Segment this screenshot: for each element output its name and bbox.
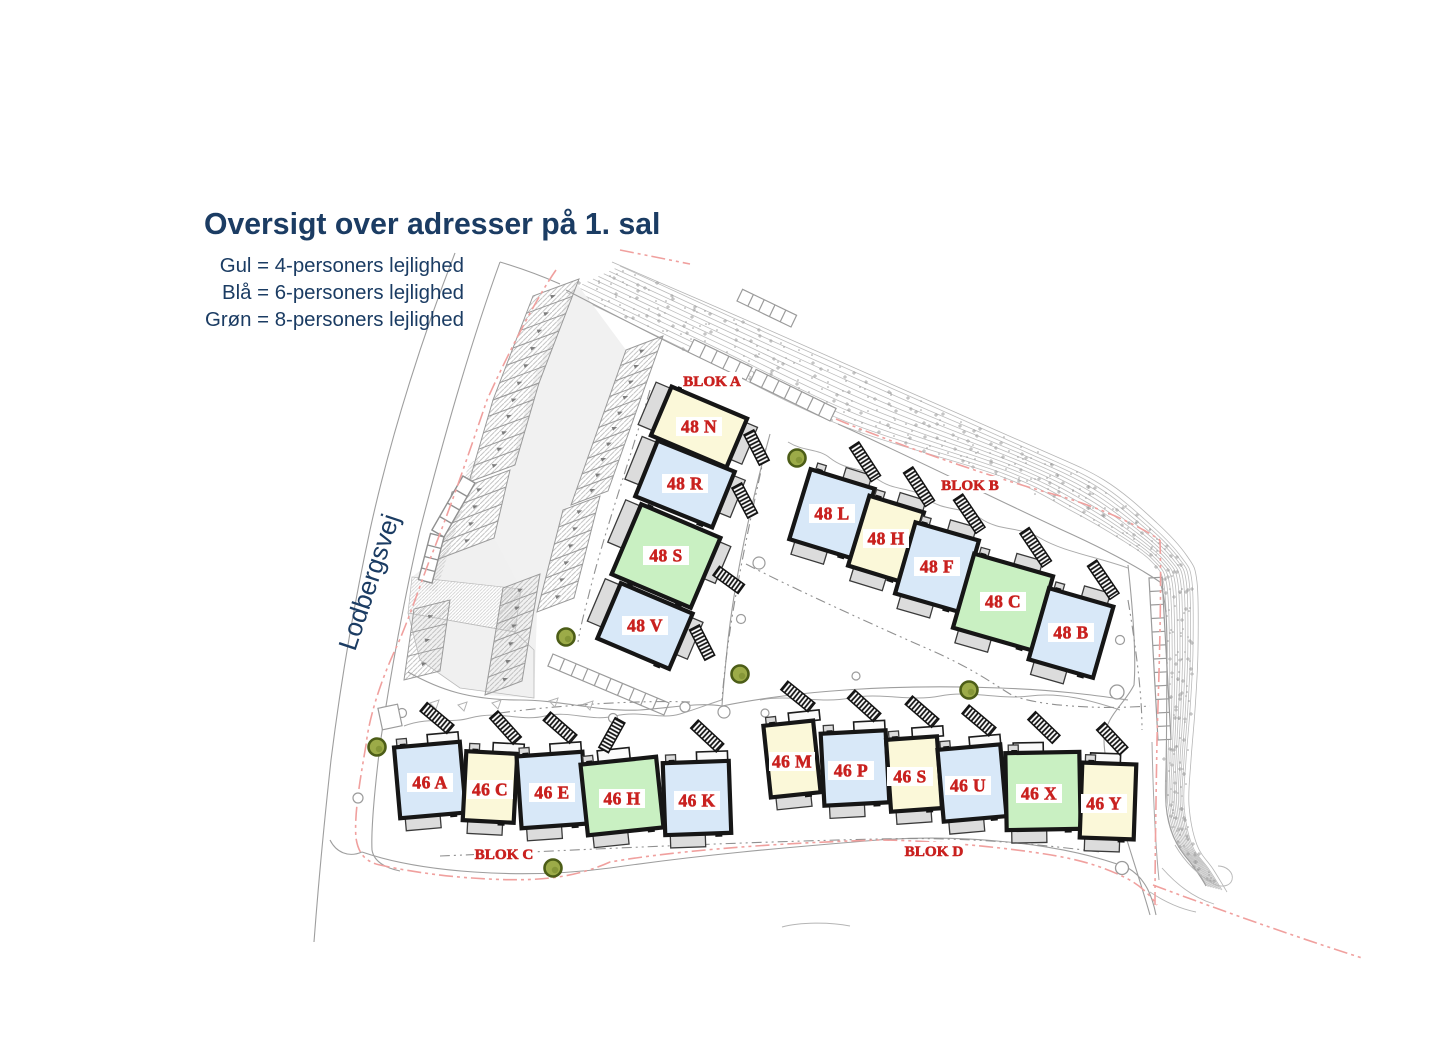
svg-text:46 A: 46 A [412,773,447,793]
svg-text:48 R: 48 R [667,474,703,494]
svg-text:Blå = 6-personers lejlighed: Blå = 6-personers lejlighed [222,282,464,304]
svg-text:46 S: 46 S [893,767,926,787]
svg-text:BLOK D: BLOK D [905,843,964,860]
svg-text:46 X: 46 X [1021,784,1057,804]
svg-text:46 K: 46 K [678,791,715,811]
svg-text:BLOK B: BLOK B [941,477,999,494]
svg-text:BLOK C: BLOK C [475,846,534,863]
svg-text:48 F: 48 F [920,557,954,577]
svg-text:46 P: 46 P [834,761,868,781]
svg-text:46 U: 46 U [950,776,986,796]
svg-text:Oversigt over adresser på 1. s: Oversigt over adresser på 1. sal [204,208,660,241]
svg-text:48 B: 48 B [1053,623,1088,643]
svg-text:48 H: 48 H [867,529,904,549]
svg-text:Gul = 4-personers lejlighed: Gul = 4-personers lejlighed [220,255,464,277]
svg-text:46 H: 46 H [603,789,640,809]
svg-text:46 Y: 46 Y [1086,794,1121,814]
svg-text:48 V: 48 V [627,616,663,636]
svg-text:48 L: 48 L [814,504,849,524]
svg-text:46 M: 46 M [772,752,812,772]
svg-text:Grøn = 8-personers lejlighed: Grøn = 8-personers lejlighed [205,309,464,331]
svg-text:46 C: 46 C [472,780,508,800]
svg-text:BLOK A: BLOK A [683,373,741,390]
svg-text:46 E: 46 E [534,783,569,803]
svg-text:48 C: 48 C [985,592,1021,612]
svg-text:48 S: 48 S [649,546,682,566]
svg-text:48 N: 48 N [681,417,717,437]
